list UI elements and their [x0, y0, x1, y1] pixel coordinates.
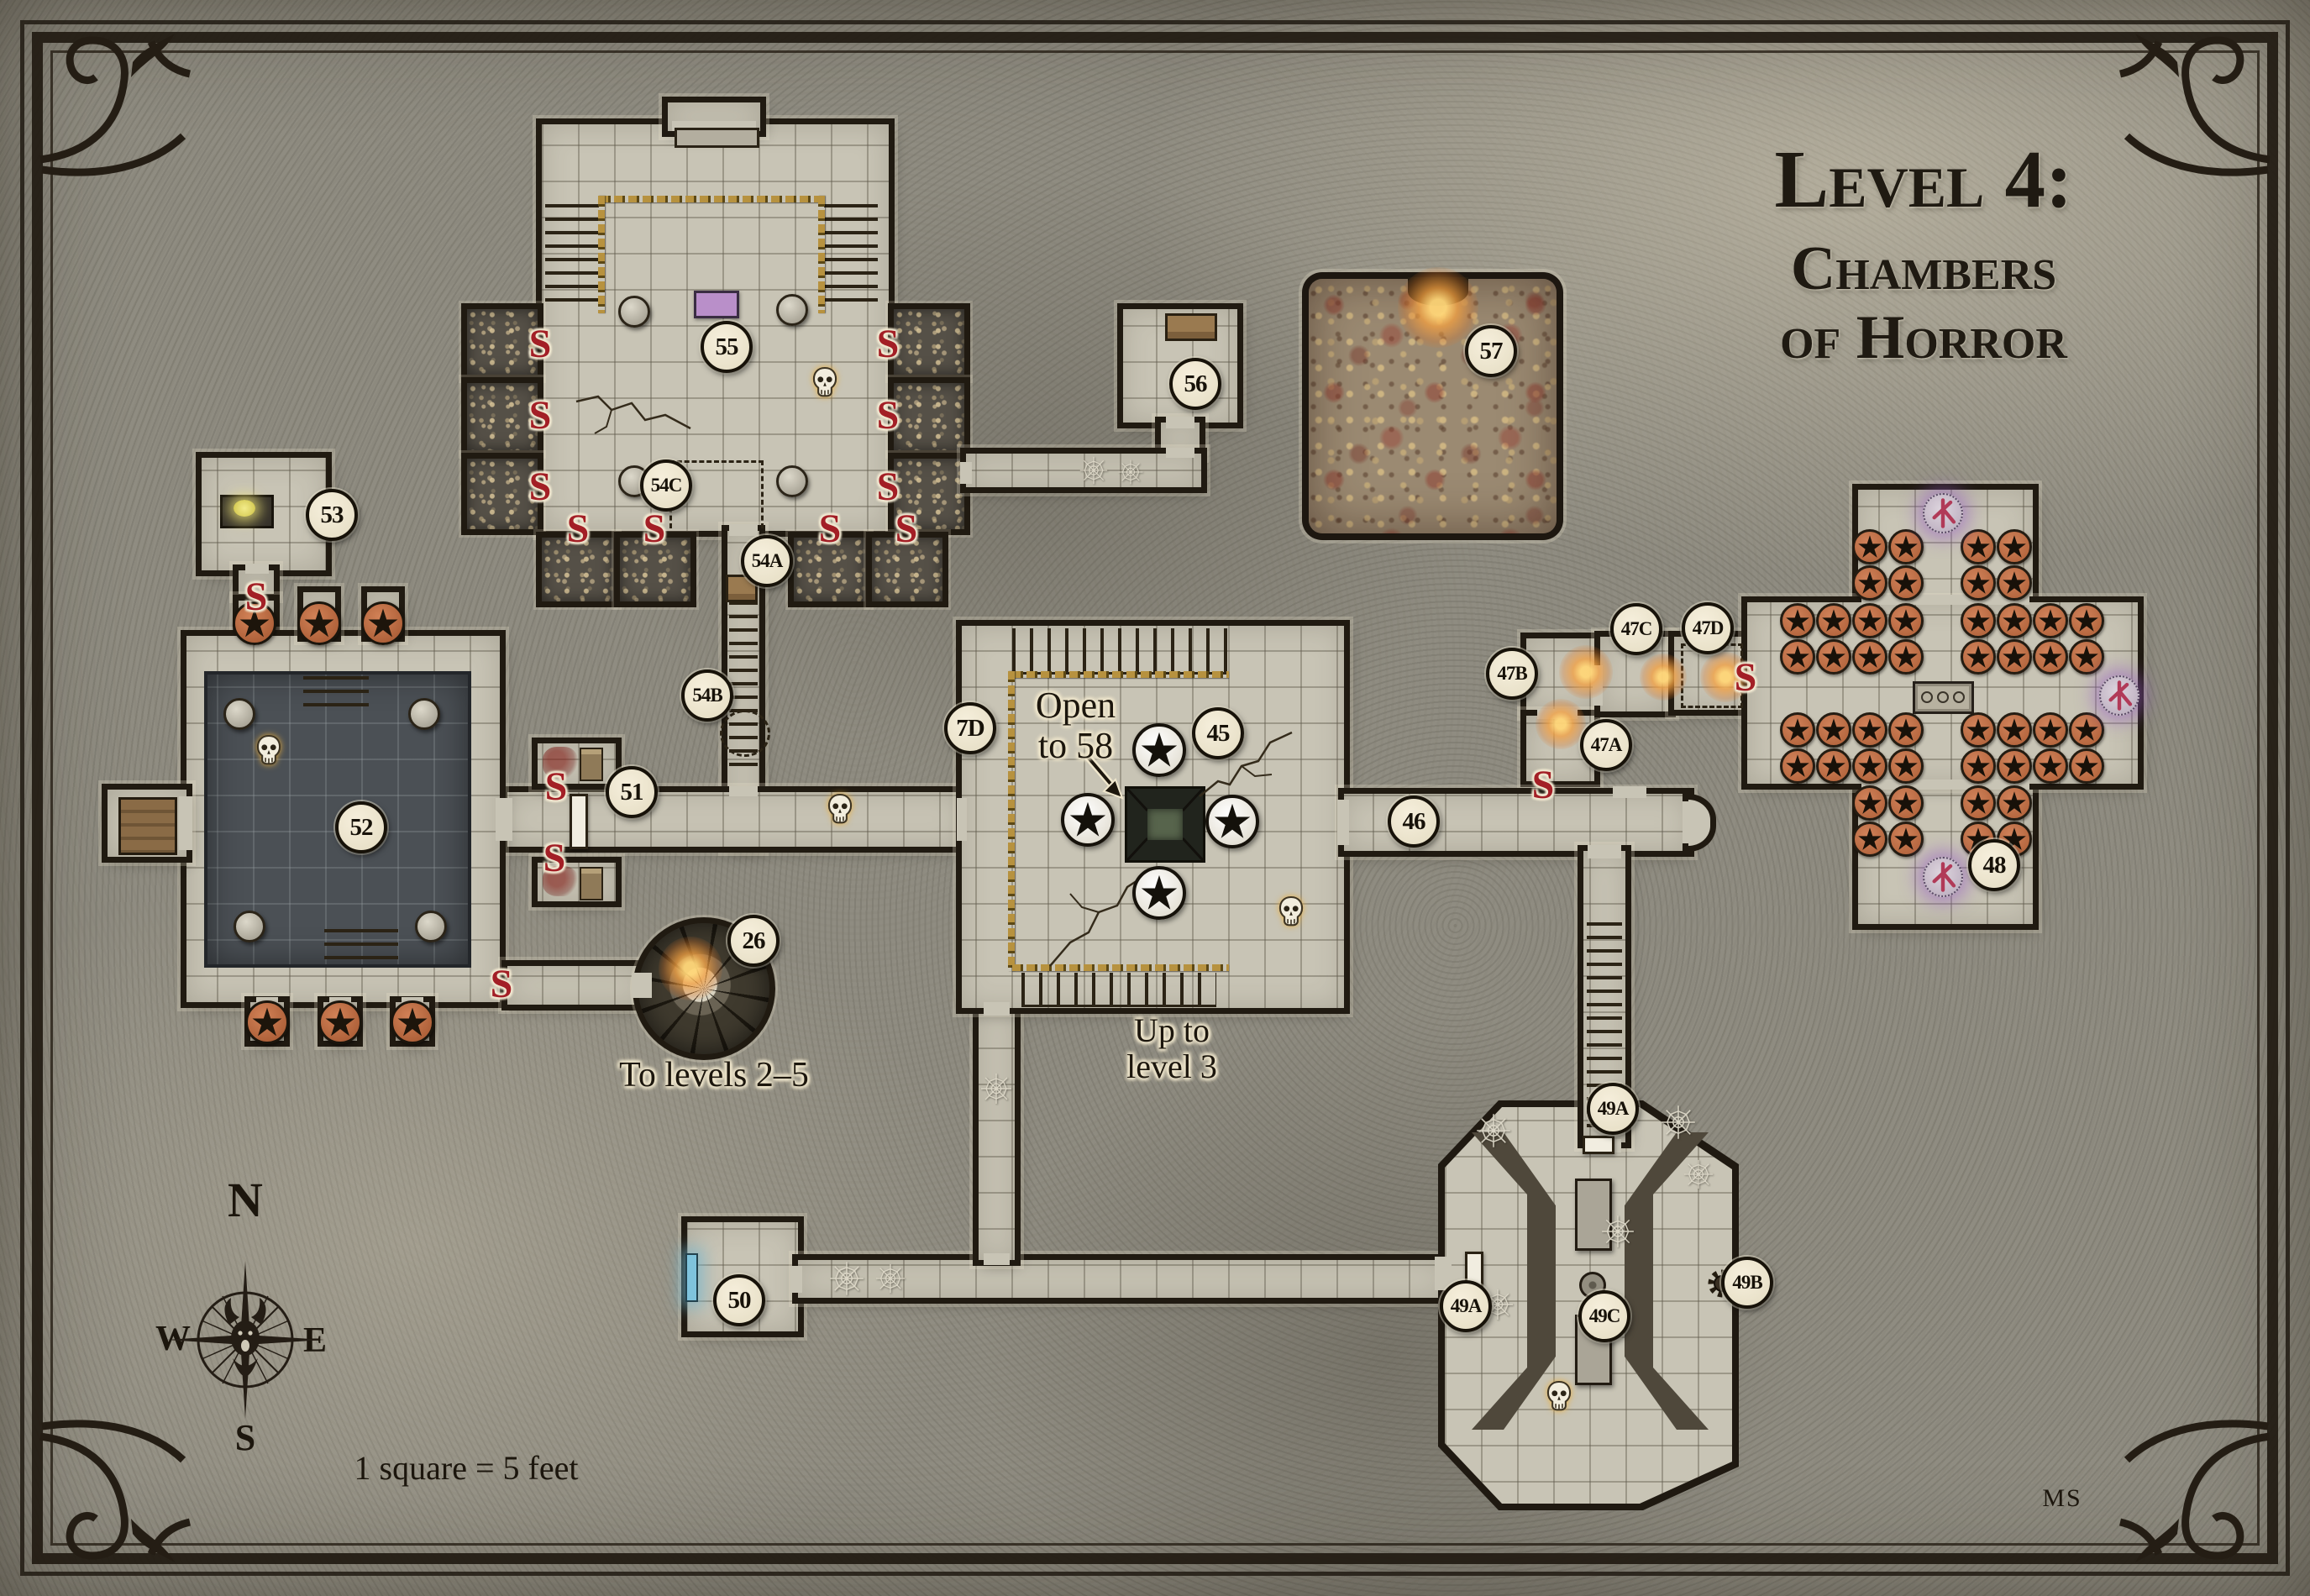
star-sigil-tile — [2033, 639, 2068, 675]
star-sigil-tile — [1780, 639, 1815, 675]
chain-railing — [1012, 671, 1229, 678]
star-sigil-tile — [2069, 603, 2104, 638]
star-sigil-tile — [2033, 603, 2068, 638]
trap-star-marker — [1132, 866, 1186, 920]
corner-flourish-icon — [25, 1394, 202, 1571]
star-sigil-tile — [1888, 712, 1924, 748]
glyph-rune-icon — [2099, 675, 2139, 716]
corridor-26-floor — [507, 966, 642, 1005]
star-sigil-tile — [1961, 603, 1996, 638]
pillar — [234, 911, 265, 942]
torch-glow-icon — [1536, 699, 1586, 749]
secret-door-marker: S — [1532, 765, 1555, 806]
spiderweb-icon — [1079, 455, 1109, 486]
bench-55 — [675, 128, 759, 148]
stairs — [324, 929, 398, 966]
spiderweb-icon — [979, 1072, 1013, 1105]
doorway — [1166, 448, 1194, 458]
map-title-line2: Chambers — [1714, 234, 2134, 305]
lamp-glow — [234, 500, 255, 517]
star-sigil-tile — [2069, 639, 2104, 675]
star-sigil-tile — [1816, 603, 1851, 638]
room-number-badge: 47A — [1580, 719, 1632, 771]
secret-door-marker: S — [877, 396, 900, 436]
spiderweb-icon — [1660, 1104, 1697, 1141]
dungeon-map-canvas: SSSSSSSSSSSSSSSS 5554C54A54B53525126507D… — [0, 0, 2310, 1596]
star-sigil-tile — [1888, 748, 1924, 784]
room-number-badge: 54C — [640, 459, 692, 512]
star-sigil-tile — [1888, 785, 1924, 821]
star-pressure-plate — [361, 601, 405, 645]
star-sigil-tile — [1997, 748, 2032, 784]
chain-railing — [818, 196, 825, 313]
star-sigil-tile — [1888, 822, 1924, 857]
doorway — [1588, 845, 1621, 858]
stairs — [824, 204, 878, 312]
altar-55 — [694, 291, 739, 318]
star-sigil-tile — [1852, 712, 1887, 748]
star-sigil-tile — [1961, 565, 1996, 601]
star-sigil-tile — [1961, 785, 1996, 821]
pillar — [415, 911, 447, 942]
note-to-levels-2-5: To levels 2–5 — [588, 1057, 840, 1095]
secret-door-marker: S — [545, 767, 568, 807]
secret-door-marker: S — [543, 838, 566, 879]
glyph-rune-icon — [1923, 857, 1963, 897]
skull-icon — [826, 792, 854, 826]
corner-flourish-icon — [25, 25, 202, 202]
star-sigil-tile — [1997, 785, 2032, 821]
doorway — [1166, 417, 1194, 428]
chain-railing — [598, 196, 605, 313]
secret-door-marker: S — [491, 964, 513, 1005]
pit-bottom — [1147, 809, 1183, 840]
room-number-badge: 54B — [681, 669, 733, 722]
torch-glow-icon — [1559, 645, 1613, 699]
doorway — [179, 796, 192, 850]
secret-door-marker: S — [529, 467, 552, 507]
bone-cell — [894, 309, 964, 375]
scale-note: 1 square = 5 feet — [294, 1450, 638, 1486]
room-number-badge: 7D — [944, 702, 996, 754]
glyph-rune-icon — [1923, 493, 1963, 533]
secret-door-marker: S — [643, 509, 666, 549]
bone-cell — [467, 459, 538, 529]
room-number-badge: 49A — [1587, 1083, 1639, 1135]
star-sigil-tile — [1852, 639, 1887, 675]
pillar — [618, 296, 650, 328]
doorway — [1613, 786, 1646, 798]
map-title-line1: Level 4: — [1714, 133, 2134, 226]
doorway — [245, 564, 269, 574]
spiderweb-icon — [1683, 1158, 1714, 1190]
double-door — [570, 794, 588, 849]
doorway — [1683, 801, 1694, 843]
star-sigil-tile — [1852, 748, 1887, 784]
plaque-48 — [1913, 681, 1974, 714]
star-sigil-tile — [1961, 712, 1996, 748]
star-sigil-tile — [2033, 748, 2068, 784]
room-number-badge: 48 — [1968, 839, 2020, 891]
doorway — [632, 973, 652, 998]
star-sigil-tile — [1888, 529, 1924, 564]
trap-star-marker — [1205, 795, 1259, 848]
star-sigil-tile — [1852, 529, 1887, 564]
room-number-badge: 57 — [1465, 325, 1517, 377]
room-number-badge: 45 — [1192, 707, 1244, 759]
door-49-north — [1583, 1136, 1614, 1154]
star-sigil-tile — [1888, 639, 1924, 675]
room-45-south-steps — [1021, 973, 1216, 1007]
star-sigil-tile — [1816, 712, 1851, 748]
stairs — [545, 204, 599, 312]
star-sigil-tile — [1816, 639, 1851, 675]
star-sigil-tile — [1997, 712, 2032, 748]
torch-glow-icon — [1640, 654, 1687, 701]
pillar — [776, 465, 808, 497]
secret-door-marker: S — [529, 396, 552, 436]
secret-door-marker: S — [1735, 658, 1757, 698]
star-sigil-tile — [1888, 603, 1924, 638]
star-pressure-plate — [297, 601, 341, 645]
room-number-badge: 50 — [713, 1274, 765, 1326]
room-number-badge: 52 — [335, 801, 387, 853]
doorway — [790, 1266, 802, 1293]
room-number-badge: 56 — [1169, 358, 1221, 410]
star-sigil-tile — [1780, 748, 1815, 784]
secret-door-marker: S — [529, 324, 552, 365]
note-up-to-level-3: Up tolevel 3 — [1092, 1012, 1252, 1084]
floor-crack — [571, 353, 697, 437]
star-sigil-tile — [1997, 529, 2032, 564]
star-sigil-tile — [2033, 712, 2068, 748]
spiderweb-icon — [1475, 1112, 1512, 1149]
doorway — [984, 1253, 1010, 1265]
room-number-badge: 47C — [1610, 603, 1662, 655]
torch-glow-icon — [1398, 267, 1478, 348]
star-sigil-tile — [1997, 603, 2032, 638]
doorway — [729, 786, 758, 796]
room-45-north-steps — [1012, 628, 1228, 675]
star-sigil-tile — [1852, 603, 1887, 638]
star-sigil-tile — [1997, 565, 2032, 601]
doorway — [960, 462, 972, 484]
bone-cell — [467, 383, 538, 450]
pillar — [776, 294, 808, 326]
star-sigil-tile — [1888, 565, 1924, 601]
doorway — [957, 798, 967, 841]
room-number-badge: 55 — [701, 321, 753, 373]
star-sigil-tile — [1816, 748, 1851, 784]
rack-52 — [118, 797, 177, 855]
spiderweb-icon — [828, 1260, 865, 1297]
doorway — [984, 1002, 1010, 1016]
bone-cell — [894, 383, 964, 450]
chest-56 — [1165, 313, 1217, 341]
spiderweb-icon — [1600, 1214, 1635, 1249]
room-number-badge: 49B — [1721, 1257, 1773, 1309]
skull-icon — [811, 365, 839, 399]
stairs — [303, 676, 369, 713]
star-sigil-tile — [1961, 748, 1996, 784]
star-pressure-plate — [318, 1000, 362, 1044]
room-number-badge: 54A — [741, 535, 793, 587]
room-number-badge: 47B — [1486, 648, 1538, 700]
torch-glow-icon — [659, 937, 722, 1000]
star-sigil-tile — [1852, 565, 1887, 601]
spiderweb-icon — [1117, 459, 1144, 486]
corner-flourish-icon — [2108, 1394, 2285, 1571]
doorway — [1337, 800, 1349, 845]
secret-door-marker: S — [819, 509, 842, 549]
note-open-to-58: Opento 58 — [998, 685, 1153, 765]
room-number-badge: 53 — [306, 489, 358, 541]
star-sigil-tile — [1961, 639, 1996, 675]
star-pressure-plate — [391, 1000, 434, 1044]
area-54B-outline — [720, 710, 770, 757]
room-number-badge: 51 — [606, 766, 658, 818]
cartographer-signature: MS — [2012, 1485, 2113, 1512]
mirror-50 — [685, 1253, 698, 1302]
secret-door-marker: S — [895, 509, 918, 549]
star-sigil-tile — [2069, 712, 2104, 748]
star-sigil-tile — [2069, 748, 2104, 784]
skull-icon — [1277, 895, 1305, 928]
corner-flourish-icon — [2108, 25, 2285, 202]
doorway — [496, 798, 512, 841]
room-number-badge: 47D — [1682, 602, 1734, 654]
secret-door-marker: S — [877, 467, 900, 507]
room-number-badge: 49C — [1578, 1290, 1630, 1342]
bone-cell — [467, 309, 538, 375]
pillar — [223, 698, 255, 730]
star-sigil-tile — [1852, 785, 1887, 821]
star-sigil-tile — [1997, 639, 2032, 675]
secret-door-marker: S — [245, 577, 268, 617]
secret-door-marker: S — [567, 509, 590, 549]
spiderweb-icon — [874, 1263, 906, 1294]
connector-corridor-floor — [979, 1005, 1015, 1260]
chain-railing — [600, 196, 824, 202]
skull-icon — [255, 733, 283, 767]
room-number-badge: 49A — [1440, 1280, 1492, 1332]
star-sigil-tile — [1852, 822, 1887, 857]
bed — [580, 867, 603, 900]
star-sigil-tile — [1780, 603, 1815, 638]
skull-icon — [1545, 1379, 1573, 1413]
room-number-badge: 26 — [727, 915, 780, 967]
pillar — [408, 698, 440, 730]
secret-door-marker: S — [877, 324, 900, 365]
bed — [580, 748, 603, 781]
star-pressure-plate — [245, 1000, 289, 1044]
star-sigil-tile — [1780, 712, 1815, 748]
room-number-badge: 46 — [1388, 795, 1440, 848]
star-sigil-tile — [1961, 529, 1996, 564]
map-title-line3: of Horror — [1714, 302, 2134, 374]
